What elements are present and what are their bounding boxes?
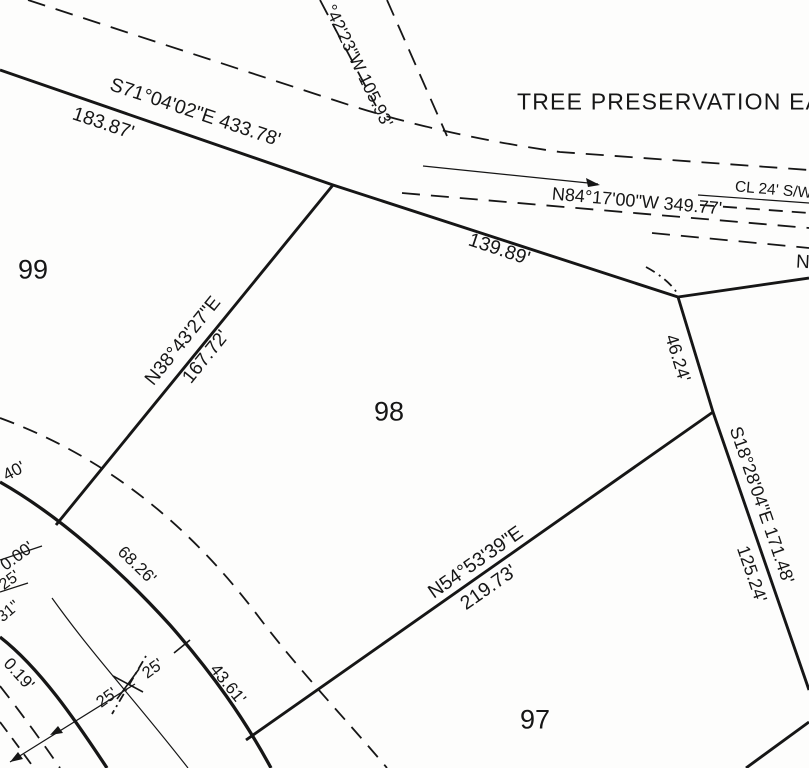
radius-arrowhead-mid xyxy=(50,726,63,735)
leader-lines xyxy=(0,166,809,762)
centerline-tick-a xyxy=(128,669,139,684)
radius-arrowhead-end xyxy=(10,752,23,762)
lot98-lot97-divider xyxy=(246,412,713,740)
southwest-dashed-arc xyxy=(0,686,60,768)
lot-number-98: 98 xyxy=(374,399,404,426)
centerline-leader xyxy=(423,166,598,184)
tree-preservation-easement: TREE PRESERVATION EASEMENT xyxy=(517,91,809,114)
steep-easement-right xyxy=(387,0,447,136)
lot97-southeast-line xyxy=(746,722,809,768)
bearing-fragment-n: N xyxy=(796,253,809,273)
lot-boundary-lines xyxy=(0,70,809,768)
frontage-arc xyxy=(0,482,271,768)
survey-linework xyxy=(0,0,809,768)
plat-map: S71°04'02"E 433.78'183.87'°42'23"W 105.9… xyxy=(0,0,809,768)
lot-number-97: 97 xyxy=(520,707,550,734)
centerline-arrowhead xyxy=(586,178,600,187)
east-boundary-line xyxy=(678,297,809,690)
northeast-corner-line xyxy=(678,278,809,297)
southwest-dashed-arc-2 xyxy=(0,722,34,768)
lot-number-99: 99 xyxy=(18,257,48,284)
building-setback-arc xyxy=(0,418,387,768)
lower-easement-edge xyxy=(652,233,809,248)
road-right-of-way-arcs xyxy=(0,482,271,768)
easement-dashed-lines xyxy=(0,0,809,768)
